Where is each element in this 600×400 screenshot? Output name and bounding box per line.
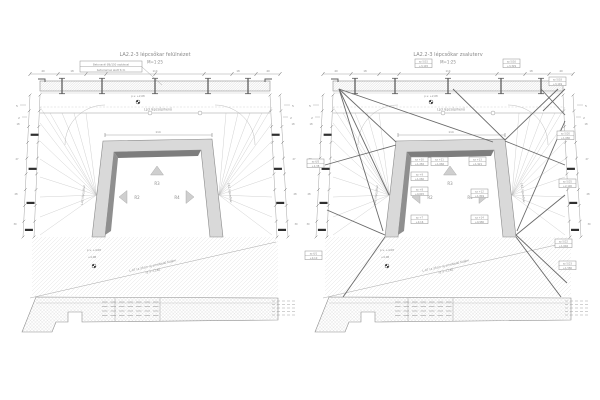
dimension-label: 18 <box>363 69 367 73</box>
tag-line2: +1,849 <box>475 194 485 198</box>
tag-line2: +2,190 <box>563 184 573 188</box>
tag-line1: sz 5/18 <box>553 77 562 81</box>
tag-line2: +3,329 <box>507 64 517 68</box>
dimension-label: 30 <box>13 223 17 226</box>
benchmark-top: p.v. +2,08 <box>131 94 145 104</box>
tag-line2: +0,10 <box>310 256 318 260</box>
dimension-label: 40 <box>334 69 338 73</box>
dimension-label: 28 <box>307 193 311 196</box>
landing-line: Lp3 lépcsőpihenő <box>333 107 563 115</box>
dimension-label: 27 <box>15 158 19 161</box>
dimension-label: 28 <box>14 193 18 196</box>
arrow-label-r2: R2 <box>134 195 140 200</box>
benchmark-value: +4,08 <box>381 255 390 259</box>
benchmark-value: p.v. +4,08 <box>87 248 101 252</box>
level-tag: sz 5/15+3,145 <box>415 59 432 68</box>
tag-line2: +0,645 <box>415 192 425 196</box>
tag-line2: +1,580 <box>563 266 573 270</box>
dimension-label: 27 <box>585 158 589 161</box>
level-tag: sz 6/1+0,10 <box>305 251 322 260</box>
tag-line1: sz 5/16 <box>507 59 516 63</box>
dimension-label: 28 <box>586 193 590 196</box>
tag-line2: +1,060 <box>415 177 425 181</box>
tag-line2: +1,646 <box>559 244 569 248</box>
landing-label: Lp3 lépcsőpihenő <box>144 108 172 112</box>
benchmark-top: p.v. +2,08 <box>424 94 438 104</box>
tick-label: 5 <box>292 104 294 108</box>
tag-line1: sz 6/5 <box>312 159 320 163</box>
dimension-label: 18 <box>584 123 588 126</box>
benchmark-value: p.v. +2,08 <box>131 94 145 98</box>
dimension-label: 18 <box>16 123 20 126</box>
level-tag: sz 5/20+1,680 <box>557 131 574 140</box>
level-tag: sz 5/16+3,329 <box>503 59 520 68</box>
dimension-label: 114 <box>446 69 451 73</box>
arrow-label-r3: R3 <box>447 181 453 186</box>
benchmark-value: p.v. +2,08 <box>424 94 438 98</box>
arrow-label-r4: R4 <box>174 195 180 200</box>
small-tick-labels: 5252 <box>16 104 294 120</box>
tag-line2: +3,145 <box>419 64 429 68</box>
tag-line1: sz +11 <box>435 157 444 161</box>
small-tick-labels: 5252 <box>309 104 587 120</box>
dimension-label: 40 <box>41 69 45 73</box>
arrow-label-r3: R3 <box>154 181 160 186</box>
panel-scale: M=1:25 <box>147 60 163 65</box>
tag-line1: sz 5/25 <box>563 179 572 183</box>
panel-right-formwork-plan: LA2.2-3 lépcsőkar zsalutervM=1:254018114… <box>303 45 593 350</box>
tag-line1: sz 5/15 <box>419 59 428 63</box>
note-line2: betonlemez alatt 5cm <box>97 68 126 72</box>
foundation-band <box>315 297 590 332</box>
top-dimension-row: 40181141840 <box>322 69 575 76</box>
top-dimension-row: 40181141840 <box>29 69 282 76</box>
benchmark-value: +4,08 <box>88 255 97 259</box>
level-tag: sz +14+0,980 <box>471 215 488 224</box>
tag-line1: sz +8 <box>416 187 424 191</box>
beam-strip <box>331 78 565 94</box>
tick-label: 5 <box>585 104 587 108</box>
tick-label: 5 <box>16 104 18 108</box>
level-tag: sz +11+1,666 <box>431 157 448 166</box>
level-tag: sz 6/5+1,38 <box>307 159 324 168</box>
level-tag: sz 5/23+1,580 <box>559 261 576 270</box>
dimension-label: 114 <box>153 69 158 73</box>
tag-line1: sz +7 <box>416 215 424 219</box>
tag-line1: sz 5/20 <box>561 131 570 135</box>
panel-left-top-view: LA2.2-3 lépcsőkar felülnézetM=1:25401811… <box>10 45 300 350</box>
tick-label: 5 <box>309 104 311 108</box>
tag-line1: sz 6/1 <box>310 251 318 255</box>
dimension-label: 40 <box>266 69 270 73</box>
level-tag: sz +10+1,282 <box>411 157 428 166</box>
tag-line2: +1,921 <box>473 162 483 166</box>
tag-line2: +1,666 <box>435 162 445 166</box>
tag-line1: sz +14 <box>475 215 484 219</box>
tag-line2: +0,980 <box>475 220 485 224</box>
dimension-label: 18 <box>291 123 295 126</box>
level-tag: sz +7+0,16 <box>411 215 428 224</box>
tag-line2: +3,149 <box>553 82 563 86</box>
tick-label: 2 <box>18 116 20 120</box>
tag-line1: sz 5/22 <box>559 239 568 243</box>
tag-line1: sz 5/23 <box>563 261 572 265</box>
tag-line1: sz +13 <box>473 157 482 161</box>
level-tag: sz +12+1,849 <box>471 189 488 198</box>
level-tag: sz +8+0,645 <box>411 187 428 196</box>
dimension-label: 18 <box>309 123 313 126</box>
foundation-band <box>22 297 297 332</box>
dimension-label: 18 <box>236 69 240 73</box>
dimension-label: 30 <box>306 223 310 226</box>
flight-label: LA2 lépcsőkar <box>80 184 86 205</box>
tag-line2: +1,680 <box>561 136 571 140</box>
landing-line: Lp3 lépcsőpihenő <box>40 107 270 115</box>
tag-line2: +1,282 <box>415 162 425 166</box>
tag-line2: +0,16 <box>416 220 424 224</box>
panel-title: LA2.2-3 lépcsőkar zsaluterv <box>413 51 482 58</box>
drawing-canvas: LA2.2-3 lépcsőkar felülnézetM=1:25401811… <box>0 0 600 400</box>
dimension-label: 18 <box>529 69 533 73</box>
dimension-label: 28 <box>293 193 297 196</box>
dimension-label: 30 <box>587 223 591 226</box>
tag-line1: sz +12 <box>475 189 484 193</box>
tag-line1: sz +9 <box>416 172 424 176</box>
level-tag: sz +9+1,060 <box>411 172 428 181</box>
level-tag: sz 5/22+1,646 <box>555 239 572 248</box>
dimension-label: 114 <box>155 130 161 134</box>
tick-label: 2 <box>583 116 585 120</box>
dimension-label: 18 <box>70 69 74 73</box>
tag-line1: sz +10 <box>415 157 424 161</box>
beam-strip <box>38 78 272 94</box>
panel-title: LA2.2-3 lépcsőkar felülnézet <box>119 51 190 58</box>
benchmark-value: p.v. +4,08 <box>380 248 394 252</box>
level-tag: sz 5/25+2,190 <box>559 179 576 188</box>
dimension-label: 30 <box>294 223 298 226</box>
level-tag: sz +13+1,921 <box>469 157 486 166</box>
tick-label: 2 <box>290 116 292 120</box>
dimension-label: 40 <box>559 69 563 73</box>
tag-line2: +1,38 <box>312 164 320 168</box>
tick-label: 2 <box>311 116 313 120</box>
panel-scale: M=1:25 <box>440 60 456 65</box>
dimension-label: 27 <box>292 158 296 161</box>
landing-label: Lp3 lépcsőpihenő <box>437 108 465 112</box>
level-tag: sz 5/18+3,149 <box>549 77 566 86</box>
dimension-label: 114 <box>448 130 454 134</box>
